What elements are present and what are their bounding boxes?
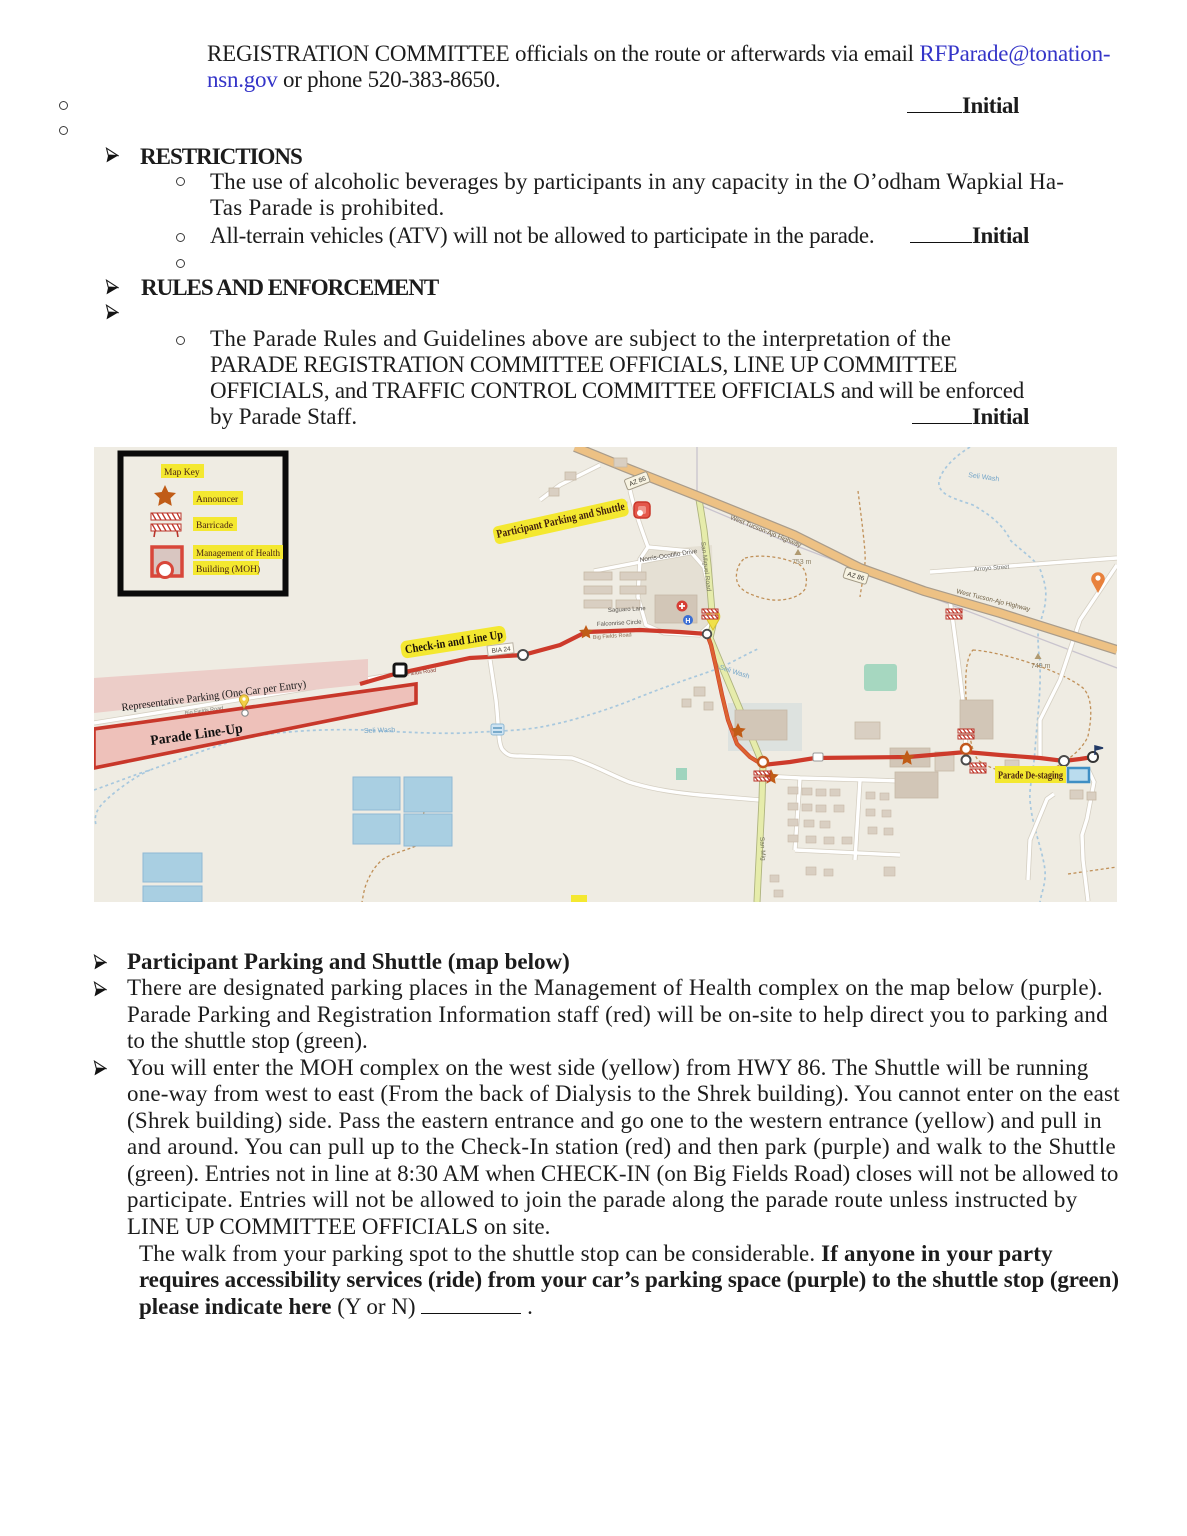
svg-text:Management of Health: Management of Health	[196, 548, 280, 559]
svg-text:Barricade: Barricade	[196, 521, 233, 531]
svg-text:749 m: 749 m	[1031, 663, 1051, 670]
svg-text:753 m: 753 m	[792, 559, 812, 566]
svg-text:Parade De-staging: Parade De-staging	[998, 771, 1064, 782]
svg-text:Building (MOH): Building (MOH)	[196, 564, 260, 575]
svg-text:Map Key: Map Key	[164, 468, 200, 478]
svg-text:Seli Wash: Seli Wash	[364, 727, 396, 735]
svg-text:H: H	[685, 618, 690, 625]
svg-text:Announcer: Announcer	[196, 495, 239, 505]
